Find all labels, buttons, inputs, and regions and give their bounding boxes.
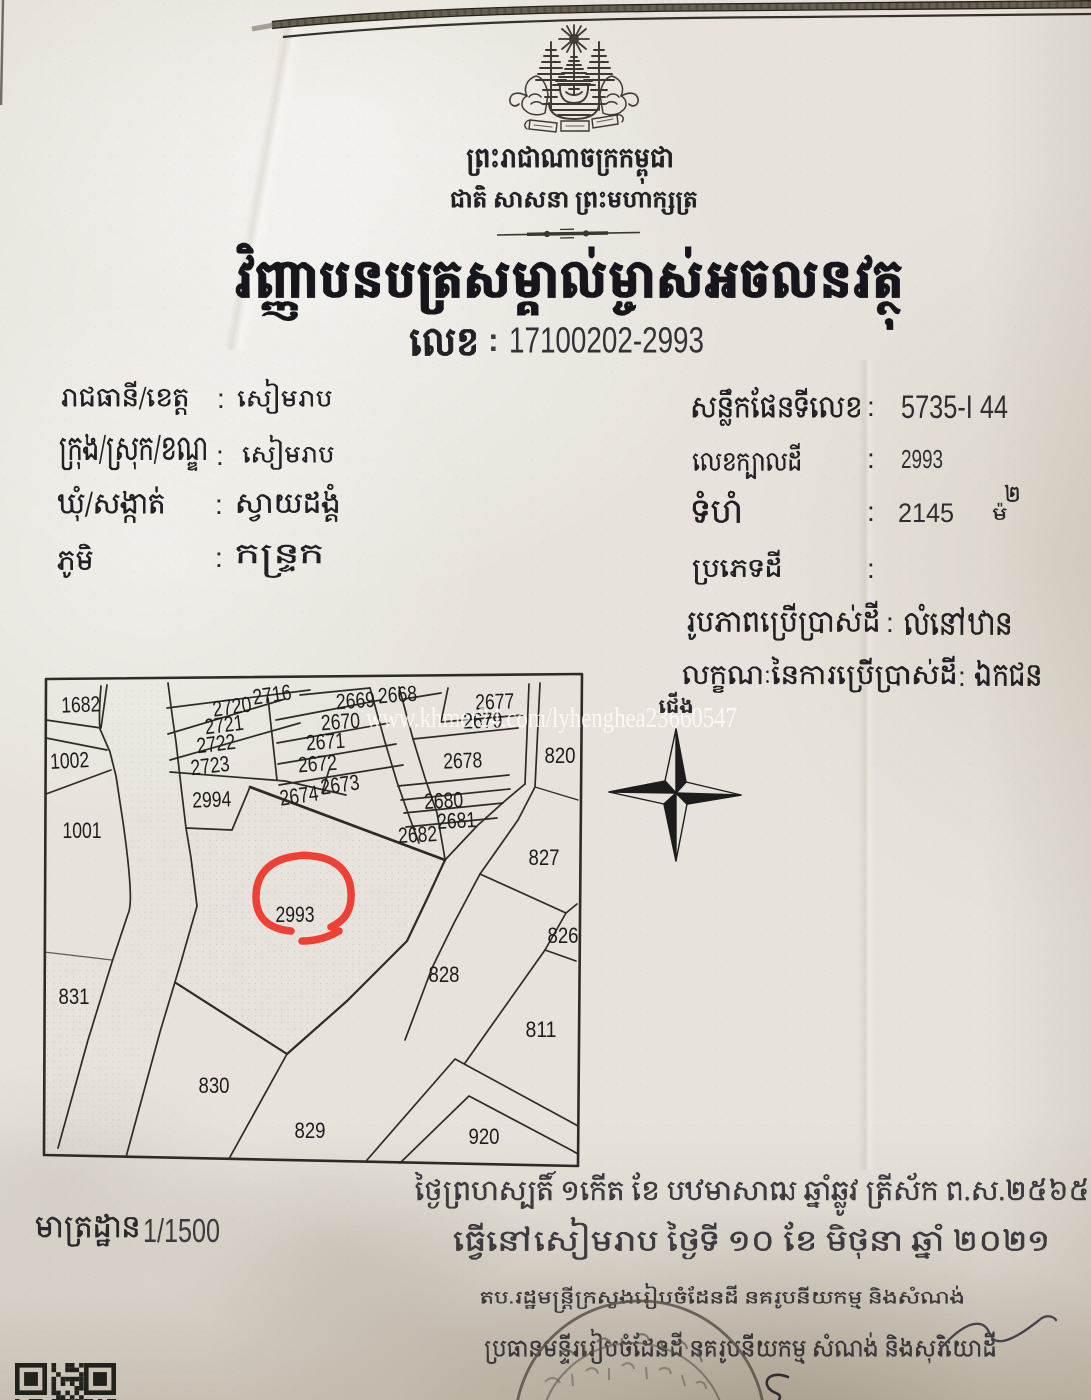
svg-text:1682: 1682 bbox=[61, 691, 101, 717]
svg-text:5735-I 44: 5735-I 44 bbox=[901, 389, 1008, 425]
svg-text:2678: 2678 bbox=[443, 747, 483, 773]
svg-text:2994: 2994 bbox=[192, 786, 232, 812]
svg-text::: : bbox=[867, 553, 875, 584]
svg-text:831: 831 bbox=[59, 984, 90, 1009]
svg-text::: : bbox=[215, 489, 223, 520]
svg-text::: : bbox=[488, 322, 499, 358]
svg-text:17100202-2993: 17100202-2993 bbox=[509, 320, 704, 361]
svg-text::: : bbox=[217, 383, 225, 414]
svg-text:828: 828 bbox=[429, 962, 460, 987]
svg-text::: : bbox=[216, 440, 224, 471]
svg-text:2723: 2723 bbox=[189, 751, 231, 781]
svg-text:920: 920 bbox=[469, 1124, 500, 1149]
svg-text:2681: 2681 bbox=[436, 807, 476, 834]
svg-text:1002: 1002 bbox=[49, 747, 89, 774]
svg-text::: : bbox=[886, 607, 894, 638]
svg-text::: : bbox=[958, 661, 966, 692]
svg-text:830: 830 bbox=[199, 1073, 230, 1098]
svg-text:826: 826 bbox=[548, 923, 579, 948]
svg-text:2993: 2993 bbox=[901, 444, 943, 474]
svg-text:2682: 2682 bbox=[397, 821, 437, 848]
svg-text::: : bbox=[867, 443, 875, 474]
svg-text::: : bbox=[215, 542, 223, 573]
svg-text:820: 820 bbox=[545, 743, 576, 768]
svg-text:829: 829 bbox=[295, 1118, 326, 1143]
svg-text:1/1500: 1/1500 bbox=[143, 1212, 220, 1249]
svg-text::: : bbox=[867, 391, 875, 422]
svg-text:1001: 1001 bbox=[63, 818, 102, 843]
svg-text:827: 827 bbox=[529, 845, 560, 870]
svg-text:2145: 2145 bbox=[898, 498, 954, 528]
svg-text::: : bbox=[867, 496, 875, 527]
svg-text:811: 811 bbox=[526, 1017, 557, 1042]
svg-text:2993: 2993 bbox=[276, 902, 315, 927]
